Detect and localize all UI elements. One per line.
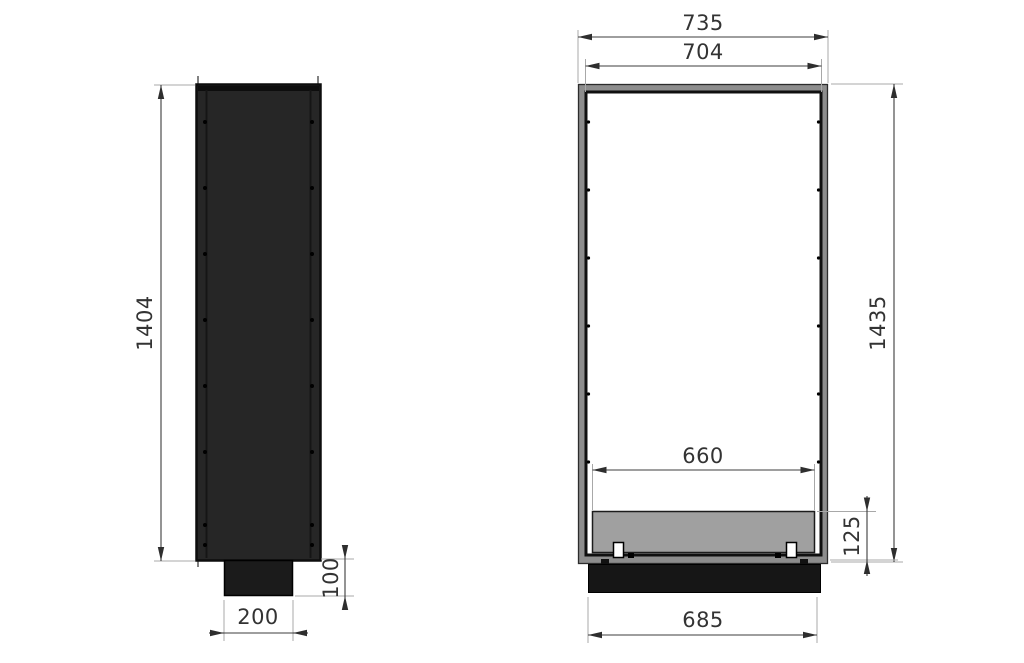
dim-label-side-height: 1404 [133,295,157,350]
tray-left-bolt [628,553,634,558]
side-base-block [225,561,293,596]
dim-label-side-base-depth: 200 [237,605,279,629]
front-view: 735 704 1435 660 [578,11,903,643]
dim-label-front-overall-width: 735 [682,11,724,35]
dim-label-front-overall-height: 1435 [866,295,890,350]
dim-label-side-base-height: 100 [319,557,343,599]
technical-drawing-canvas: 1404 100 200 [0,0,1024,663]
front-opening [586,92,821,555]
dim-label-front-base-width: 685 [682,608,724,632]
dim-side-base-depth: 200 [209,600,308,641]
dim-side-height: 1404 [133,85,195,561]
side-body-top-band [198,86,319,91]
front-base-block [589,565,821,593]
dim-label-tray-width: 660 [682,444,724,468]
drawing-svg: 1404 100 200 [0,0,1024,663]
burner-tray [593,512,815,553]
dim-front-base-width: 685 [588,597,817,643]
dim-label-front-opening-width: 704 [682,40,724,64]
tray-left-pin [614,543,624,558]
dim-front-overall-height: 1435 [831,84,903,562]
side-body-panel [197,85,321,561]
dim-label-tray-zone-height: 125 [840,515,864,557]
dim-tray-zone-height: 125 [817,496,898,576]
side-view: 1404 100 200 [133,76,354,641]
tray-right-bolt [775,553,781,558]
tray-right-pin [787,543,797,558]
